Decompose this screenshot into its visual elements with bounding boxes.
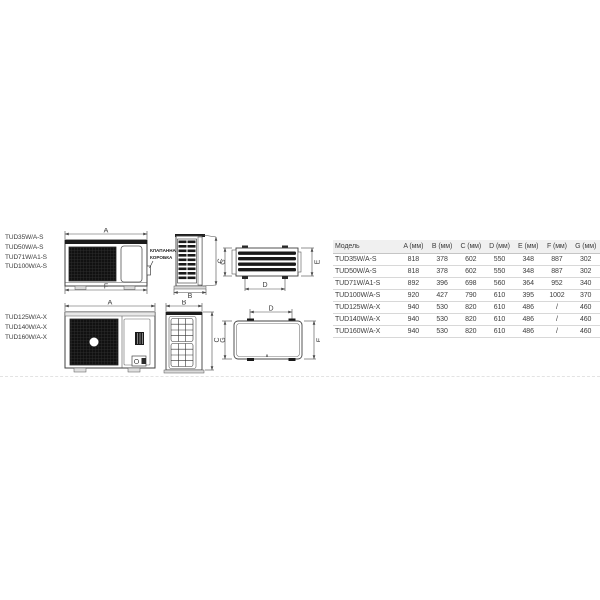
ladder-grille bbox=[178, 239, 197, 283]
foot bbox=[124, 286, 135, 290]
table-cell: 610 bbox=[485, 326, 514, 337]
model-cell: TUD140W/A-X bbox=[333, 314, 399, 325]
table-cell: 460 bbox=[571, 326, 600, 337]
table-cell: 364 bbox=[514, 278, 543, 289]
foot bbox=[128, 368, 140, 372]
model-cell: TUD50W/A-S bbox=[333, 266, 399, 277]
model-cell: TUD100W/A-S bbox=[333, 290, 399, 301]
table-cell: 348 bbox=[514, 266, 543, 277]
table-cell: 820 bbox=[456, 326, 485, 337]
table-cell: 370 bbox=[571, 290, 600, 301]
table-cell: 427 bbox=[428, 290, 457, 301]
table-cell: / bbox=[543, 302, 572, 313]
table-cell: 610 bbox=[485, 302, 514, 313]
dim-label-e: E bbox=[315, 259, 321, 264]
column-header: G (мм) bbox=[571, 240, 600, 253]
table-cell: 395 bbox=[514, 290, 543, 301]
dimensions-table: МодельA (мм)B (мм)C (мм)D (мм)E (мм)F (м… bbox=[333, 240, 600, 338]
model-label: TUD125W/A-X bbox=[5, 313, 47, 323]
dim-label-f: F bbox=[104, 284, 108, 291]
top-view-s-series: G E D bbox=[220, 236, 320, 298]
table-row: TUD50W/A-S818378602550348887302 bbox=[333, 266, 600, 278]
table-cell: 698 bbox=[456, 278, 485, 289]
table-cell: 952 bbox=[543, 278, 572, 289]
side-panel bbox=[121, 246, 142, 282]
table-cell: 302 bbox=[571, 266, 600, 277]
dim-label-g: G bbox=[220, 259, 227, 264]
side-view-x-series: B C bbox=[160, 300, 220, 378]
foot bbox=[74, 368, 86, 372]
model-label: TUD35W/A-S bbox=[5, 233, 47, 243]
dim-label-d: D bbox=[268, 306, 273, 313]
model-cell: TUD160W/A-X bbox=[333, 326, 399, 337]
fan-grille bbox=[69, 247, 116, 281]
bottom-divider bbox=[0, 376, 600, 377]
model-list-s-series: TUD35W/A-S TUD50W/A-S TUD71W/A1-S TUD100… bbox=[5, 233, 47, 272]
model-label: TUD71W/A1-S bbox=[5, 253, 47, 263]
column-header: C (мм) bbox=[456, 240, 485, 253]
table-cell: 378 bbox=[428, 254, 457, 265]
top-view-x-series: D G E bbox=[220, 302, 320, 374]
column-header: E (мм) bbox=[514, 240, 543, 253]
panel-grille bbox=[135, 332, 144, 345]
spec-sheet: TUD35W/A-S TUD50W/A-S TUD71W/A1-S TUD100… bbox=[0, 0, 600, 600]
table-cell: 550 bbox=[485, 254, 514, 265]
table-cell: / bbox=[543, 326, 572, 337]
table-cell: 602 bbox=[456, 266, 485, 277]
fan-hub bbox=[90, 338, 99, 347]
dim-label-a: A bbox=[108, 300, 113, 307]
table-row: TUD140W/A-X940530820610486/460 bbox=[333, 314, 600, 326]
column-header: B (мм) bbox=[428, 240, 457, 253]
table-cell: 818 bbox=[399, 254, 428, 265]
valve-assembly bbox=[132, 356, 146, 366]
table-cell: 530 bbox=[428, 314, 457, 325]
table-cell: 486 bbox=[514, 326, 543, 337]
top-grille-bar bbox=[65, 240, 147, 244]
model-list-x-series: TUD125W/A-X TUD140W/A-X TUD160W/A-X bbox=[5, 313, 47, 342]
table-cell: 820 bbox=[456, 302, 485, 313]
foot bbox=[75, 286, 86, 290]
table-cell: 550 bbox=[485, 266, 514, 277]
dim-label-e: E bbox=[317, 337, 321, 342]
table-cell: 460 bbox=[571, 302, 600, 313]
table-cell: 940 bbox=[399, 326, 428, 337]
column-header: F (мм) bbox=[543, 240, 572, 253]
model-label: TUD100W/A-S bbox=[5, 262, 47, 272]
table-cell: 940 bbox=[399, 302, 428, 313]
table-cell: 340 bbox=[571, 278, 600, 289]
model-label: TUD50W/A-S bbox=[5, 243, 47, 253]
model-cell: TUD71W/A1-S bbox=[333, 278, 399, 289]
callout-leader bbox=[150, 261, 154, 268]
table-cell: 1002 bbox=[543, 290, 572, 301]
model-label: TUD140W/A-X bbox=[5, 323, 47, 333]
dim-label-b: B bbox=[188, 293, 193, 298]
table-cell: 940 bbox=[399, 314, 428, 325]
table-cell: 602 bbox=[456, 254, 485, 265]
table-cell: 486 bbox=[514, 302, 543, 313]
table-body: TUD35W/A-S818378602550348887302TUD50W/A-… bbox=[333, 254, 600, 338]
table-cell: 820 bbox=[456, 314, 485, 325]
table-cell: 378 bbox=[428, 266, 457, 277]
table-cell: 920 bbox=[399, 290, 428, 301]
table-cell: 460 bbox=[571, 314, 600, 325]
table-cell: 530 bbox=[428, 326, 457, 337]
column-header: A (мм) bbox=[399, 240, 428, 253]
table-row: TUD100W/A-S9204277906103951002370 bbox=[333, 290, 600, 302]
model-label: TUD160W/A-X bbox=[5, 333, 47, 343]
table-cell: 818 bbox=[399, 266, 428, 277]
table-row: TUD35W/A-S818378602550348887302 bbox=[333, 254, 600, 266]
dim-label-a: A bbox=[104, 228, 109, 235]
model-cell: TUD35W/A-S bbox=[333, 254, 399, 265]
table-row: TUD71W/A1-S892396698560364952340 bbox=[333, 278, 600, 290]
table-cell: 892 bbox=[399, 278, 428, 289]
side-view-s-series: C B bbox=[170, 226, 222, 298]
column-header: D (мм) bbox=[485, 240, 514, 253]
table-cell: 396 bbox=[428, 278, 457, 289]
table-cell: 302 bbox=[571, 254, 600, 265]
table-cell: 486 bbox=[514, 314, 543, 325]
table-cell: 610 bbox=[485, 290, 514, 301]
model-cell: TUD125W/A-X bbox=[333, 302, 399, 313]
table-cell: / bbox=[543, 314, 572, 325]
table-cell: 887 bbox=[543, 266, 572, 277]
front-view-s-series: A КЛАПАННАЯ КОРОБКА F bbox=[58, 228, 180, 298]
dim-label-b: B bbox=[182, 300, 187, 307]
table-cell: 790 bbox=[456, 290, 485, 301]
table-header-row: МодельA (мм)B (мм)C (мм)D (мм)E (мм)F (м… bbox=[333, 240, 600, 254]
table-cell: 887 bbox=[543, 254, 572, 265]
column-header: Модель bbox=[333, 240, 399, 253]
table-cell: 348 bbox=[514, 254, 543, 265]
table-cell: 610 bbox=[485, 314, 514, 325]
dim-label-d: D bbox=[262, 282, 267, 289]
table-cell: 530 bbox=[428, 302, 457, 313]
table-row: TUD160W/A-X940530820610486/460 bbox=[333, 326, 600, 338]
table-row: TUD125W/A-X940530820610486/460 bbox=[333, 302, 600, 314]
front-view-x-series: A bbox=[58, 300, 168, 378]
dim-label-g: G bbox=[220, 337, 227, 342]
table-cell: 560 bbox=[485, 278, 514, 289]
